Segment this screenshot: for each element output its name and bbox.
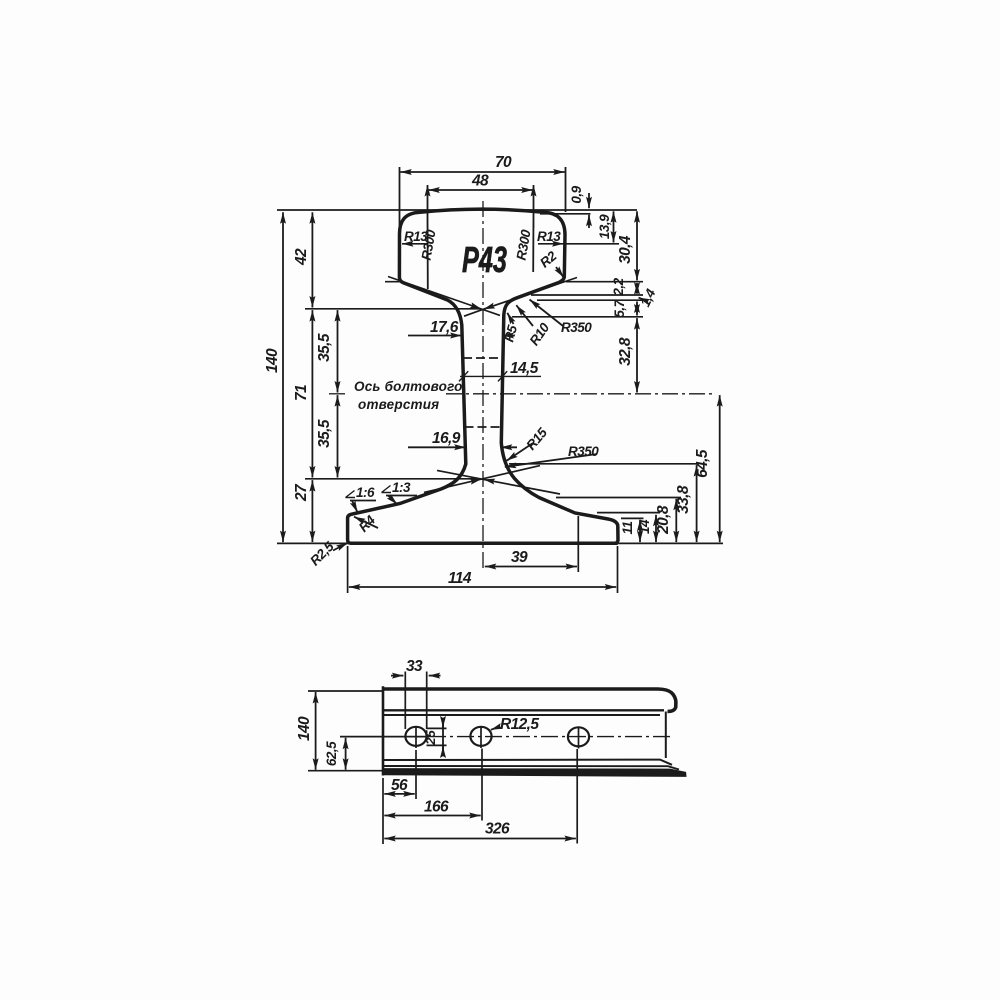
- svg-text:0,9: 0,9: [569, 185, 584, 203]
- svg-text:70: 70: [495, 154, 512, 171]
- svg-text:62,5: 62,5: [324, 741, 339, 766]
- svg-text:R350: R350: [561, 320, 592, 335]
- svg-text:326: 326: [485, 821, 510, 838]
- svg-text:17,6: 17,6: [430, 319, 459, 336]
- svg-text:33,8: 33,8: [675, 485, 692, 514]
- svg-text:48: 48: [471, 173, 489, 190]
- svg-text:Ось болтового: Ось болтового: [354, 379, 463, 394]
- svg-text:166: 166: [424, 799, 449, 816]
- svg-text:13,9: 13,9: [597, 214, 612, 239]
- svg-text:32,8: 32,8: [617, 337, 634, 366]
- svg-text:Р43: Р43: [462, 239, 507, 280]
- svg-text:140: 140: [264, 348, 281, 373]
- svg-text:R300: R300: [514, 228, 534, 261]
- svg-text:R12,5: R12,5: [500, 716, 539, 733]
- svg-text:14,5: 14,5: [510, 360, 539, 377]
- svg-text:16,9: 16,9: [432, 430, 461, 447]
- svg-text:1,4: 1,4: [637, 286, 658, 309]
- svg-text:71: 71: [293, 385, 310, 401]
- svg-text:5,7: 5,7: [612, 298, 627, 317]
- svg-text:42: 42: [293, 248, 310, 266]
- svg-text:R5: R5: [501, 323, 520, 344]
- svg-text:35,5: 35,5: [316, 333, 333, 362]
- svg-text:25: 25: [423, 730, 438, 746]
- svg-text:R350: R350: [568, 444, 599, 459]
- svg-text:35,5: 35,5: [316, 419, 333, 448]
- svg-text:56: 56: [391, 777, 408, 794]
- svg-text:2,2: 2,2: [611, 277, 626, 296]
- svg-text:R13: R13: [537, 229, 561, 244]
- svg-text:14: 14: [637, 519, 652, 534]
- svg-text:отверстия: отверстия: [358, 397, 439, 412]
- svg-text:33: 33: [406, 658, 423, 675]
- svg-text:R4: R4: [356, 512, 379, 535]
- svg-text:11: 11: [620, 521, 635, 534]
- svg-text:1:3: 1:3: [392, 480, 411, 495]
- svg-text:64,5: 64,5: [694, 449, 711, 478]
- svg-text:30,4: 30,4: [617, 235, 634, 264]
- svg-text:27: 27: [293, 483, 310, 502]
- svg-text:20,8: 20,8: [655, 505, 672, 535]
- svg-text:140: 140: [296, 716, 313, 741]
- svg-text:114: 114: [448, 570, 472, 587]
- svg-text:39: 39: [511, 549, 528, 566]
- svg-text:R15: R15: [523, 425, 550, 453]
- svg-text:1:6: 1:6: [356, 485, 375, 500]
